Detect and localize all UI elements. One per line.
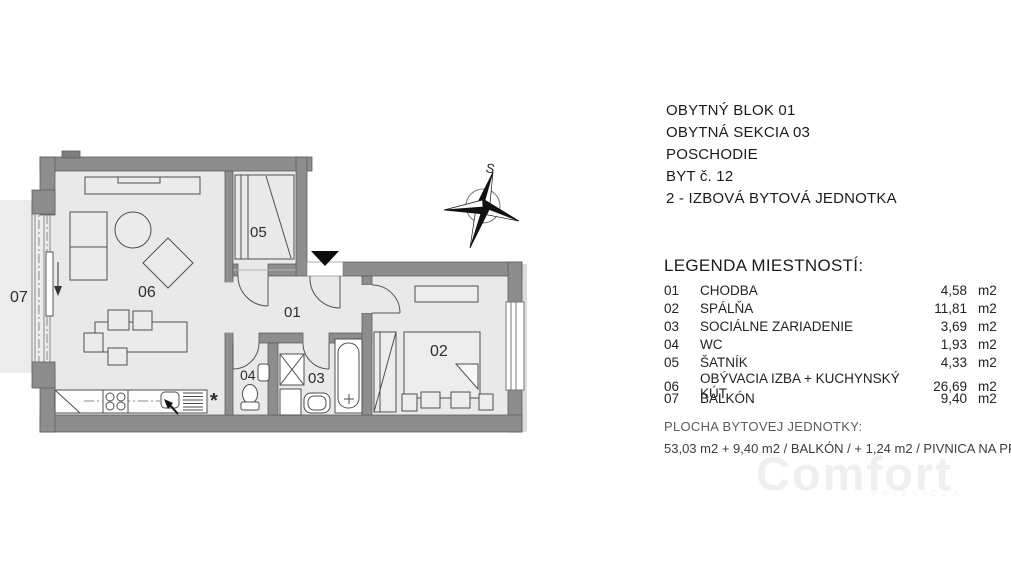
toilet-tank <box>241 402 259 410</box>
wall-shelf-notch <box>118 177 160 183</box>
room-name: SOCIÁLNE ZARIADENIE <box>700 319 917 334</box>
balcony-anchor-top <box>32 190 55 214</box>
header-line: POSCHODIE <box>666 144 897 166</box>
area-unit: m2 <box>967 355 997 370</box>
chair <box>108 310 129 330</box>
wall-top <box>40 157 312 171</box>
bedroom-wardrobe <box>374 332 396 412</box>
room-name: CHODBA <box>700 283 917 298</box>
kitchen <box>55 390 207 414</box>
room-label-04: 04 <box>240 367 256 383</box>
nightstand <box>402 394 417 411</box>
header-line: 2 - IZBOVÁ BYTOVÁ JEDNOTKA <box>666 188 897 210</box>
stove <box>103 390 128 413</box>
room-label-03: 03 <box>308 370 325 387</box>
bed-bench <box>421 392 440 408</box>
room-number: 04 <box>664 337 700 352</box>
floorplan-page: 07 06 05 01 04 03 02 * S Comf <box>0 0 1011 570</box>
legend-title: LEGENDA MIESTNOSTÍ: <box>664 256 863 276</box>
wall-wing-top <box>343 262 522 276</box>
room-name: ŠATNÍK <box>700 355 917 370</box>
room-area: 4,33 <box>917 355 967 370</box>
room-label-02: 02 <box>430 343 448 360</box>
room-name: WC <box>700 337 917 352</box>
header-line: OBYTNÁ SEKCIA 03 <box>666 122 897 144</box>
compass-north-label: S <box>484 160 496 177</box>
room-number: 01 <box>664 283 700 298</box>
room-name: BALKÓN <box>700 391 917 406</box>
chair <box>108 348 127 365</box>
double-bed <box>404 332 480 398</box>
room-name: SPÁLŇA <box>700 301 917 316</box>
sofa <box>70 212 107 280</box>
wall-wc-bath <box>268 343 278 415</box>
room-number: 05 <box>664 355 700 370</box>
round-table <box>115 212 151 248</box>
wall-living-hall <box>225 171 233 282</box>
room-area: 3,69 <box>917 319 967 334</box>
washing-machine <box>280 354 304 385</box>
compass-rose: S <box>444 160 519 248</box>
area-unit: m2 <box>967 319 997 334</box>
chair <box>84 333 103 352</box>
legend-row: 02 SPÁLŇA 11,81 m2 <box>664 299 994 317</box>
area-unit: m2 <box>967 283 997 298</box>
legend-row: 03 SOCIÁLNE ZARIADENIE 3,69 m2 <box>664 317 994 335</box>
header-line: BYT č. 12 <box>666 166 897 188</box>
bathtub <box>335 339 362 413</box>
legend-row: 01 CHODBA 4,58 m2 <box>664 281 994 299</box>
room-area: 9,40 <box>917 391 967 406</box>
area-unit: m2 <box>967 337 997 352</box>
room-number: 07 <box>664 391 700 406</box>
room-area: 11,81 <box>917 301 967 316</box>
floor-area-title: PLOCHA BYTOVEJ JEDNOTKY: <box>664 419 862 434</box>
bedroom-door-opening <box>362 285 372 313</box>
room-area: 4,58 <box>917 283 967 298</box>
watermark-sub: PRIEVIDZA <box>872 489 964 498</box>
legend-row: 05 ŠATNÍK 4,33 m2 <box>664 353 994 371</box>
area-unit: m2 <box>967 301 997 316</box>
area-unit: m2 <box>967 391 997 406</box>
wall-top-pilaster <box>62 151 80 158</box>
header-line: OBYTNÝ BLOK 01 <box>666 100 897 122</box>
wall-right-upper <box>508 262 522 304</box>
wall-hall-bath-a <box>259 333 303 343</box>
room-label-01: 01 <box>284 304 301 321</box>
washbasin <box>304 393 330 413</box>
room-number: 03 <box>664 319 700 334</box>
bath-cabinet <box>280 389 301 415</box>
sliding-door-panel <box>46 252 53 316</box>
wall-living-wc <box>225 333 233 415</box>
bedroom-window <box>506 302 524 390</box>
balcony-floor <box>0 200 47 373</box>
floorplan-drawing: 07 06 05 01 04 03 02 * S <box>0 0 540 570</box>
legend-row: 06 OBÝVACIA IZBA + KUCHYNSKÝ KÚT 26,69 m… <box>664 371 994 389</box>
bedroom-shelf <box>415 286 478 302</box>
toilet-bowl <box>243 385 258 404</box>
kitchen-asterisk: * <box>210 390 218 412</box>
room-legend: 01 CHODBA 4,58 m2 02 SPÁLŇA 11,81 m2 03 … <box>664 281 994 407</box>
room-label-07: 07 <box>10 289 28 306</box>
room-area: 1,93 <box>917 337 967 352</box>
wall-bottom <box>40 415 522 432</box>
wall-bedroom-a <box>362 276 372 285</box>
room-number: 02 <box>664 301 700 316</box>
wall-bedroom-b <box>362 313 372 415</box>
wall-entry-left <box>296 157 307 276</box>
legend-row: 04 WC 1,93 m2 <box>664 335 994 353</box>
floor-area-detail: 53,03 m2 + 9,40 m2 / BALKÓN / + 1,24 m2 … <box>664 441 1011 456</box>
nightstand <box>479 394 493 410</box>
bed-bench <box>451 392 470 408</box>
legend-row: 07 BALKÓN 9,40 m2 <box>664 389 994 407</box>
chair <box>133 311 152 330</box>
room-label-06: 06 <box>138 284 156 301</box>
corner-basin <box>258 364 269 381</box>
room-label-05: 05 <box>250 224 267 241</box>
unit-header: OBYTNÝ BLOK 01 OBYTNÁ SEKCIA 03 POSCHODI… <box>666 100 897 210</box>
balcony-anchor-bottom <box>32 362 55 388</box>
